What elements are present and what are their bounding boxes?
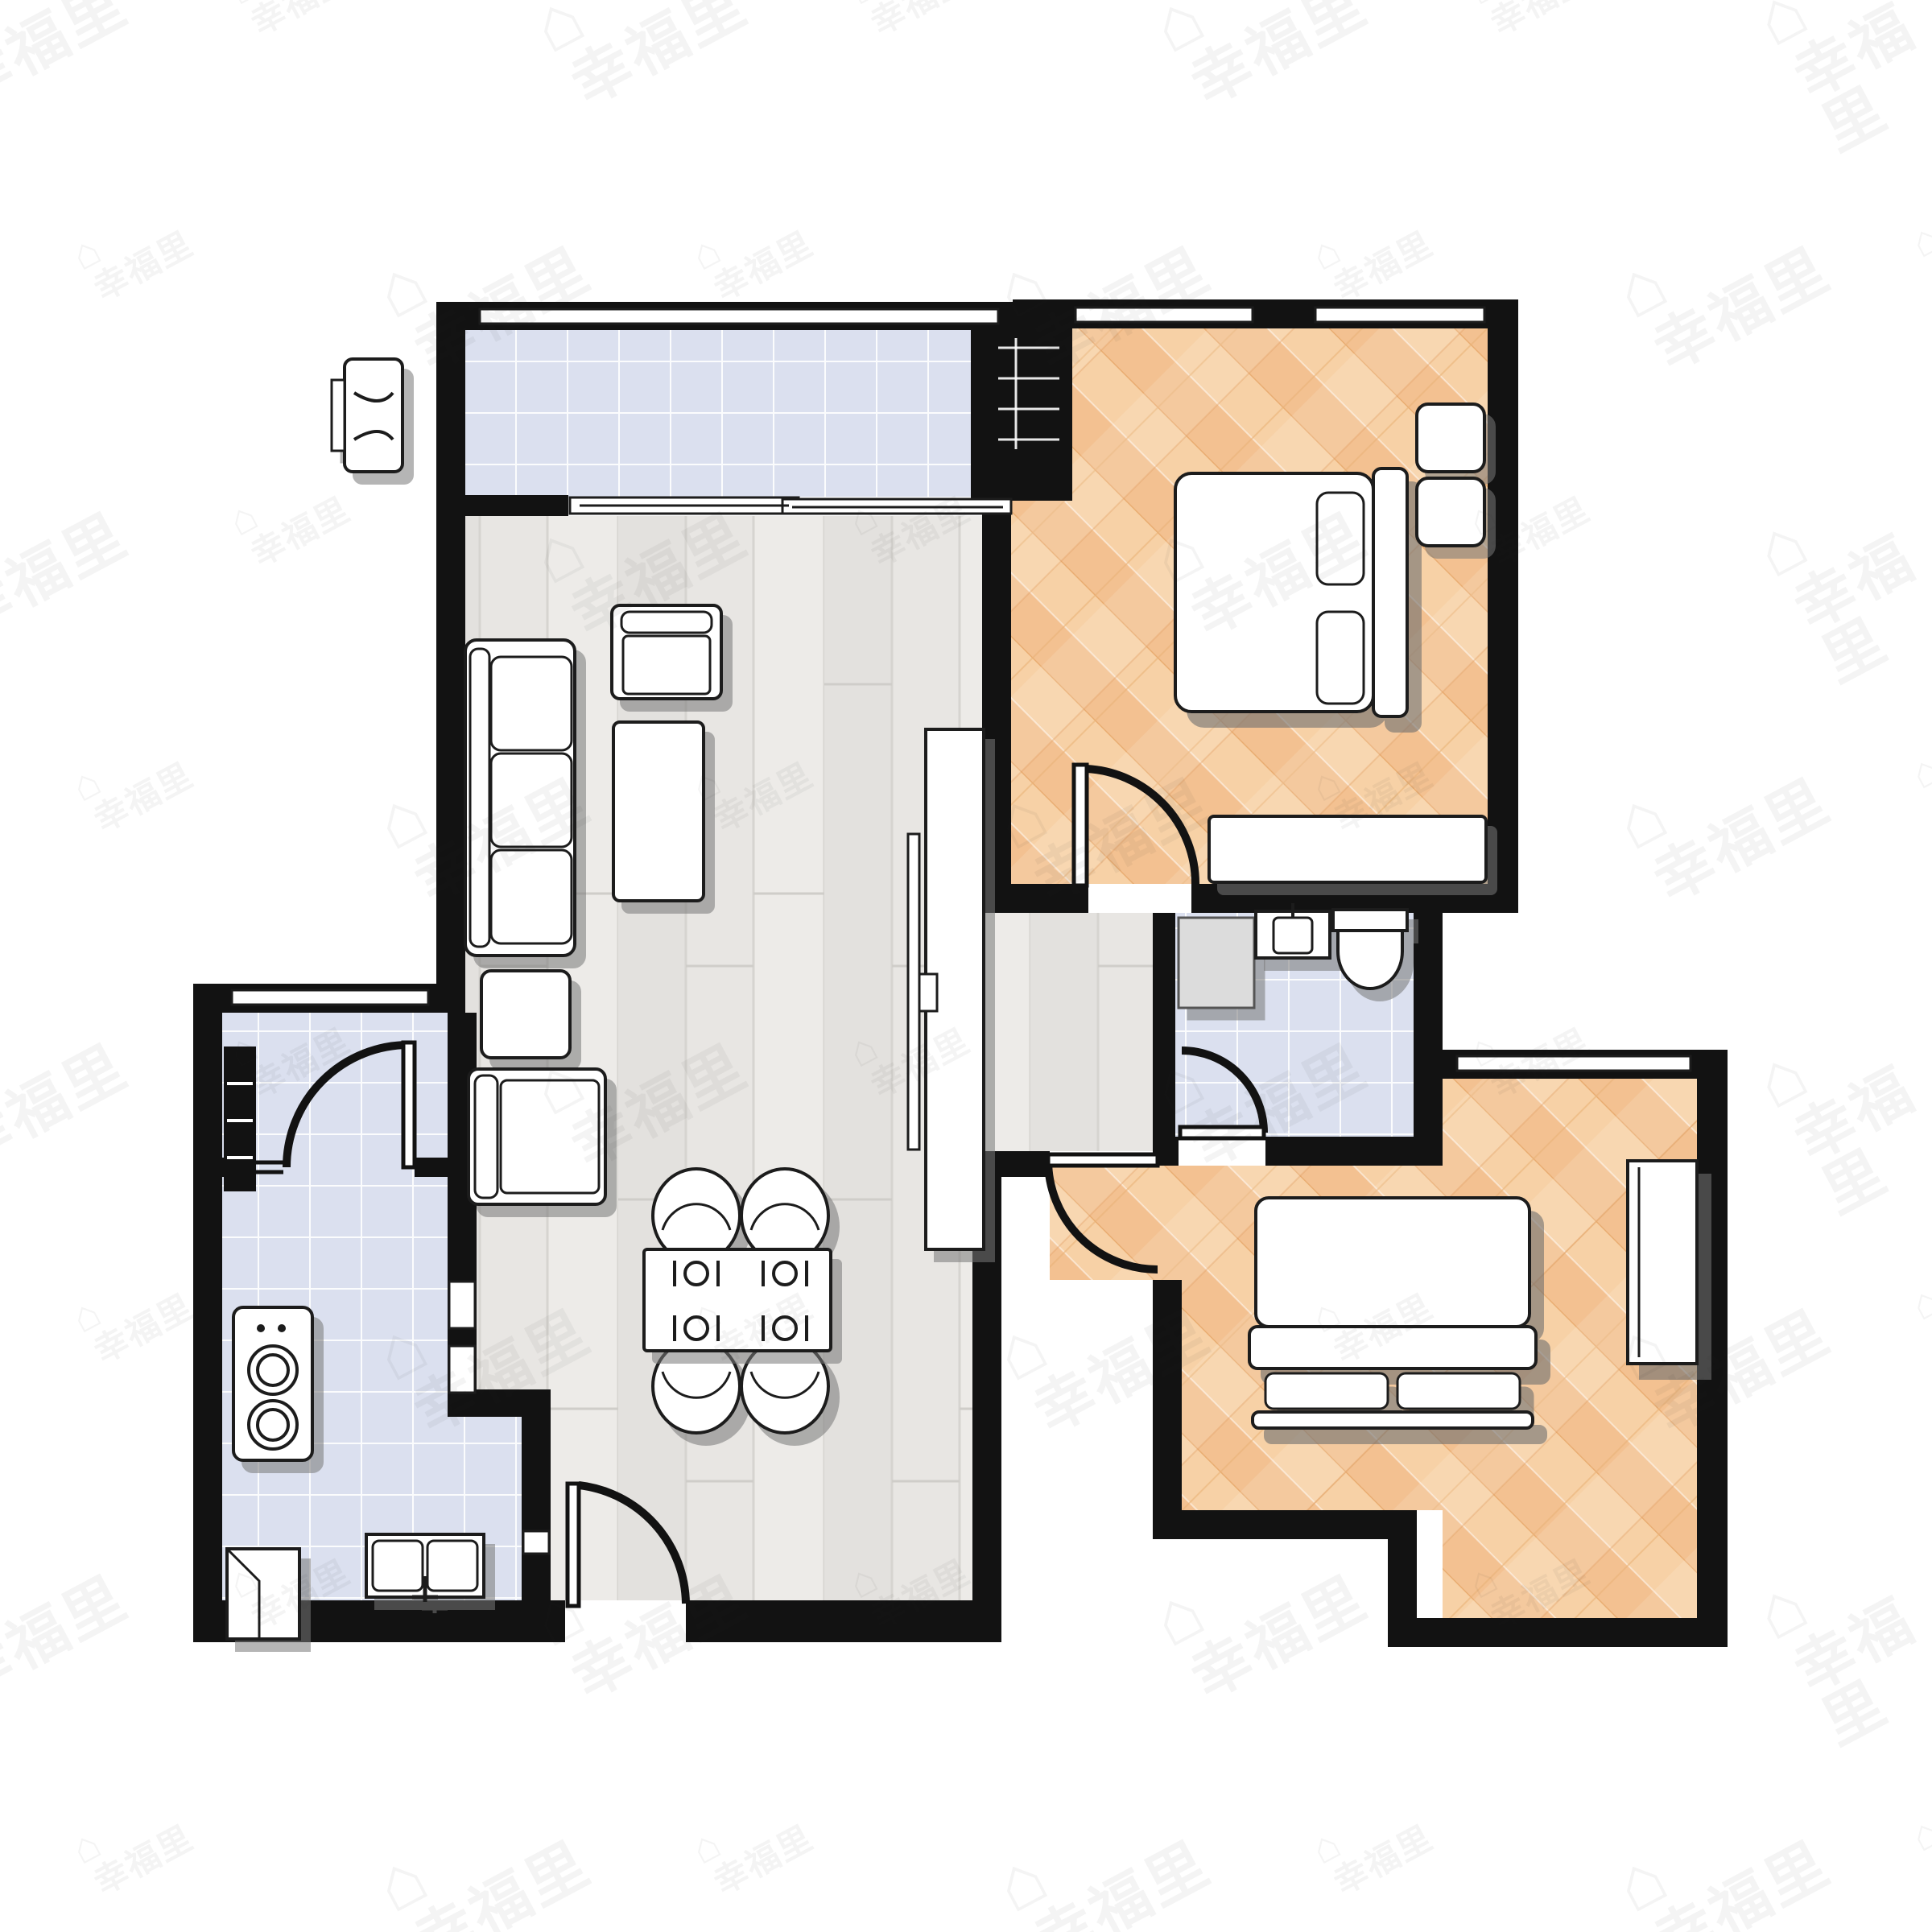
bed2-headboard	[1253, 1412, 1533, 1428]
sofa	[465, 640, 575, 956]
bed2-pillow	[1397, 1373, 1520, 1409]
nightstand	[1417, 478, 1484, 546]
bedroom1-window-a	[1075, 308, 1253, 322]
side-table	[481, 971, 570, 1058]
balcony-window	[480, 309, 998, 324]
dining-table	[644, 1249, 831, 1351]
bed1-pillow	[1317, 612, 1364, 704]
armchair	[612, 605, 721, 699]
kitchen-pass-window-c	[523, 1531, 549, 1554]
bedroom2-window	[1457, 1056, 1690, 1071]
floor-plan-canvas: ⌂幸福里⌂幸福里⌂幸福里⌂幸福里⌂幸福里⌂幸福里⌂幸福里⌂幸福里⌂幸福里⌂幸福里…	[0, 0, 1932, 1932]
balcony-bottom-stub	[465, 495, 568, 516]
balcony-sliding-door	[570, 497, 1011, 514]
entry-door-stub	[415, 1158, 448, 1177]
bathroom-bottom-wall-b	[1265, 1137, 1443, 1166]
balcony-floor	[465, 330, 971, 497]
bathroom-right-wall	[1414, 913, 1443, 1166]
utility-shaft	[971, 302, 1072, 501]
shoe-cabinet	[224, 1046, 256, 1191]
kitchen-pass-window-a	[449, 1282, 475, 1328]
bed2-pillow	[1265, 1373, 1388, 1409]
kitchen-pass-window-b	[449, 1346, 475, 1393]
dresser	[1209, 816, 1486, 882]
bedroom1-window-b	[1315, 308, 1484, 322]
armchair-2	[469, 1069, 605, 1204]
bedroom1-bottom-wall-left	[1011, 884, 1088, 913]
living-bedroom1-wall	[982, 497, 1011, 913]
bedroom1-right-wall	[1488, 299, 1518, 913]
bathroom-left-wall	[1153, 913, 1175, 1166]
refrigerator	[227, 1549, 299, 1639]
left-wall	[436, 302, 465, 1013]
bedroom2-arm-left-wall	[1153, 1280, 1182, 1539]
bed2-footboard	[1249, 1327, 1536, 1368]
wardrobe	[1628, 1161, 1697, 1364]
nightstand	[1417, 404, 1484, 472]
bedroom2-bottom-wall	[1388, 1618, 1728, 1647]
stove	[233, 1307, 312, 1460]
bed-1	[1175, 469, 1407, 716]
washing-machine	[1179, 918, 1254, 1008]
coffee-table	[613, 722, 704, 901]
bed1-headboard	[1373, 469, 1407, 716]
kitchen-sink	[366, 1534, 484, 1602]
bedroom2-arm-bottom-wall	[1153, 1510, 1417, 1539]
bottom-wall-right	[686, 1600, 1001, 1642]
bathroom-sink	[1256, 903, 1330, 958]
annex-left-wall	[193, 984, 222, 1642]
bed2-mattress	[1256, 1198, 1529, 1327]
entry-window	[232, 990, 428, 1005]
floor-plan	[0, 0, 1932, 1932]
bed1-pillow	[1317, 493, 1364, 584]
air-conditioner-unit	[332, 359, 402, 472]
bedroom2-right-wall	[1697, 1050, 1728, 1647]
